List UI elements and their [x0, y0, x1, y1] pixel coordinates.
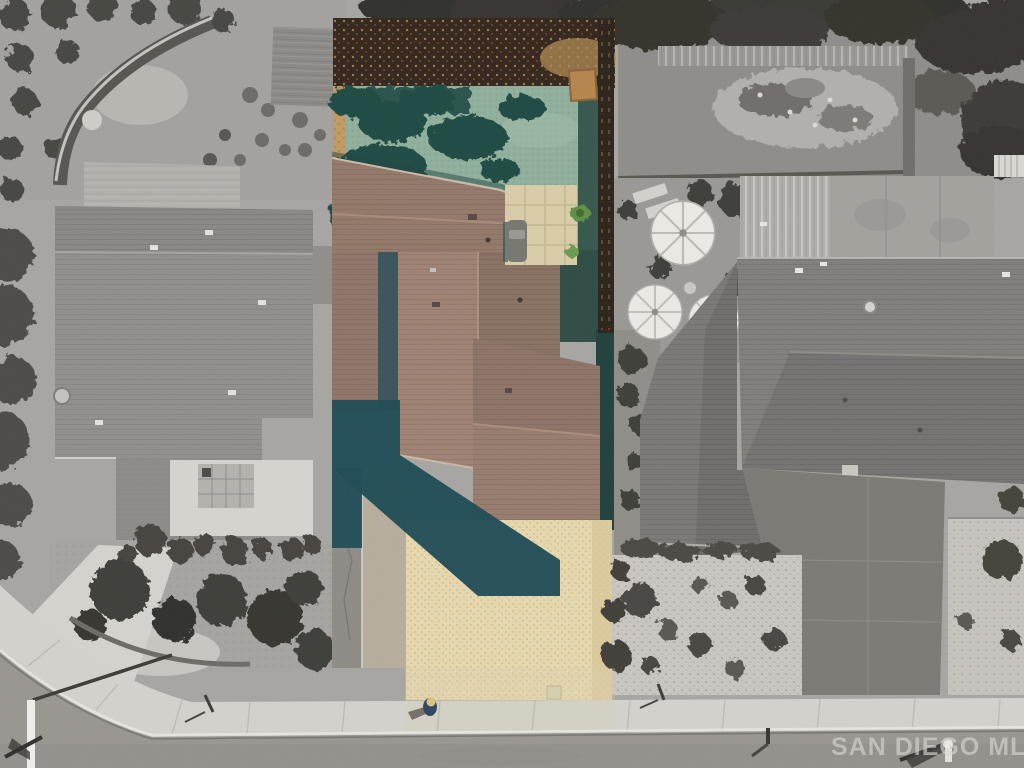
watermark: SAN DIEGO MLS	[831, 733, 1024, 762]
aerial-photo: SAN DIEGO MLS	[0, 0, 1024, 768]
aerial-scene	[0, 0, 1024, 768]
photo-grain	[0, 0, 1024, 768]
